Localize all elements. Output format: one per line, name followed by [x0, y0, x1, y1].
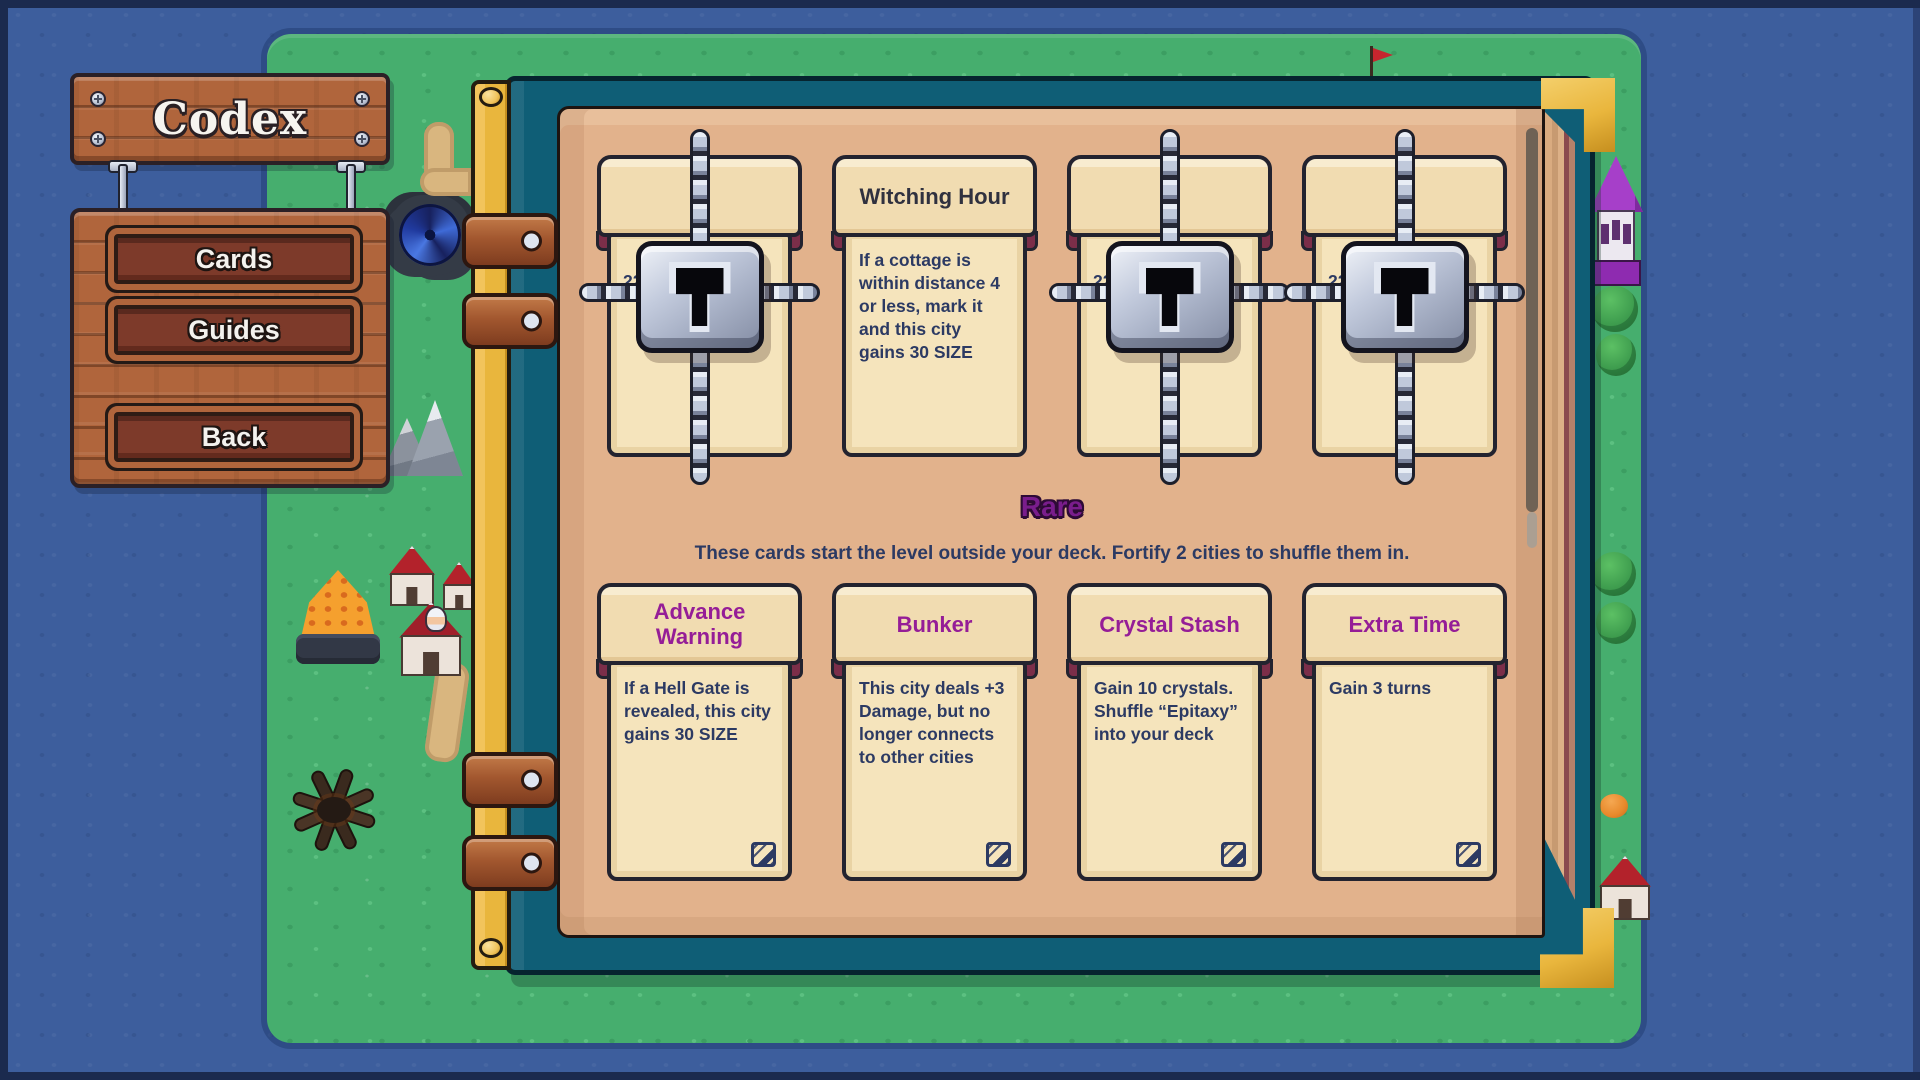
map-mountain-icon — [381, 400, 463, 476]
map-portal-icon — [390, 195, 470, 275]
edit-pen-icon — [1456, 842, 1481, 867]
menu-button-label: Cards — [196, 244, 273, 275]
map-house-icon — [388, 546, 436, 606]
book-clasp — [462, 293, 558, 349]
card-bunker[interactable]: Bunker This city deals +3 Damage, but no… — [832, 583, 1037, 881]
scrollbar-thumb[interactable] — [1526, 128, 1538, 512]
padlock-icon — [1341, 241, 1469, 353]
card-crystal-stash[interactable]: Crystal Stash Gain 10 crystals. Shuffle … — [1067, 583, 1272, 881]
card-title: Crystal Stash — [1099, 612, 1240, 637]
card-title: Witching Hour — [859, 184, 1009, 209]
menu-button-guides[interactable]: Guides — [114, 305, 354, 355]
page-title: Codex — [153, 94, 307, 145]
menu-button-label: Guides — [188, 315, 280, 346]
card-locked[interactable]: 22 — [597, 155, 802, 457]
card-locked[interactable]: 22 — [1067, 155, 1272, 457]
card-text: Gain 10 crystals. Shuffle “Epitaxy” into… — [1094, 677, 1245, 746]
map-haystack-icon — [300, 570, 376, 664]
spine-knob-icon — [479, 87, 503, 107]
screw-icon — [354, 131, 370, 147]
screw-icon — [90, 131, 106, 147]
card-title: Advance Warning — [609, 599, 790, 649]
map-tree-icon — [1596, 602, 1636, 644]
card-banner: Witching Hour — [832, 155, 1037, 237]
card-banner: Bunker — [832, 583, 1037, 665]
scrollbar-track — [1527, 512, 1537, 548]
map-tree-icon — [1592, 286, 1638, 332]
card-locked[interactable]: 22 — [1302, 155, 1507, 457]
map-flag-icon — [1370, 46, 1394, 80]
rarity-description: These cards start the level outside your… — [597, 543, 1507, 565]
book-clasp — [462, 752, 558, 808]
card-body: Gain 3 turns — [1312, 657, 1497, 881]
rarity-heading: Rare — [597, 491, 1507, 523]
card-banner: Advance Warning — [597, 583, 802, 665]
padlock-icon — [1106, 241, 1234, 353]
card-banner: Extra Time — [1302, 583, 1507, 665]
screw-icon — [90, 91, 106, 107]
menu-button-back[interactable]: Back — [114, 412, 354, 462]
page-scrollbar[interactable] — [1526, 128, 1538, 548]
card-title: Bunker — [897, 612, 973, 637]
menu-board: Cards Guides Back — [70, 208, 390, 488]
page-edge-stack — [1543, 110, 1575, 916]
spine-knob-icon — [479, 938, 503, 958]
menu-button-label: Back — [202, 422, 267, 453]
map-path — [420, 168, 472, 196]
edit-pen-icon — [986, 842, 1011, 867]
card-text: This city deals +3 Damage, but no longer… — [859, 677, 1010, 769]
book-page: 22 Witching Hour If a cottage is within … — [557, 106, 1545, 938]
padlock-icon — [636, 241, 764, 353]
menu-button-cards[interactable]: Cards — [114, 234, 354, 284]
map-villager-icon — [425, 606, 447, 632]
codex-sign: Codex — [70, 73, 390, 165]
book-clasp — [462, 213, 558, 269]
map-tower-icon — [1595, 156, 1637, 288]
map-tree-icon — [1596, 334, 1636, 376]
card-banner: Crystal Stash — [1067, 583, 1272, 665]
map-tree-icon — [1592, 552, 1636, 596]
map-pumpkin-icon — [1600, 794, 1628, 818]
edit-pen-icon — [1221, 842, 1246, 867]
card-advance-warning[interactable]: Advance Warning If a Hell Gate is reveal… — [597, 583, 802, 881]
card-extra-time[interactable]: Extra Time Gain 3 turns — [1302, 583, 1507, 881]
book-clasp — [462, 835, 558, 891]
card-text: If a Hell Gate is revealed, this city ga… — [624, 677, 775, 746]
card-text: Gain 3 turns — [1329, 677, 1480, 700]
card-text: If a cottage is within distance 4 or les… — [859, 249, 1010, 364]
edit-pen-icon — [751, 842, 776, 867]
card-body: If a Hell Gate is revealed, this city ga… — [607, 657, 792, 881]
card-body: Gain 10 crystals. Shuffle “Epitaxy” into… — [1077, 657, 1262, 881]
map-campfire-icon — [283, 758, 385, 862]
screw-icon — [354, 91, 370, 107]
codex-screen: Codex Cards Guides Back 22 — [0, 0, 1920, 1080]
card-witching-hour[interactable]: Witching Hour If a cottage is within dis… — [832, 155, 1037, 457]
card-body: This city deals +3 Damage, but no longer… — [842, 657, 1027, 881]
card-title: Extra Time — [1348, 612, 1460, 637]
card-body: If a cottage is within distance 4 or les… — [842, 229, 1027, 457]
